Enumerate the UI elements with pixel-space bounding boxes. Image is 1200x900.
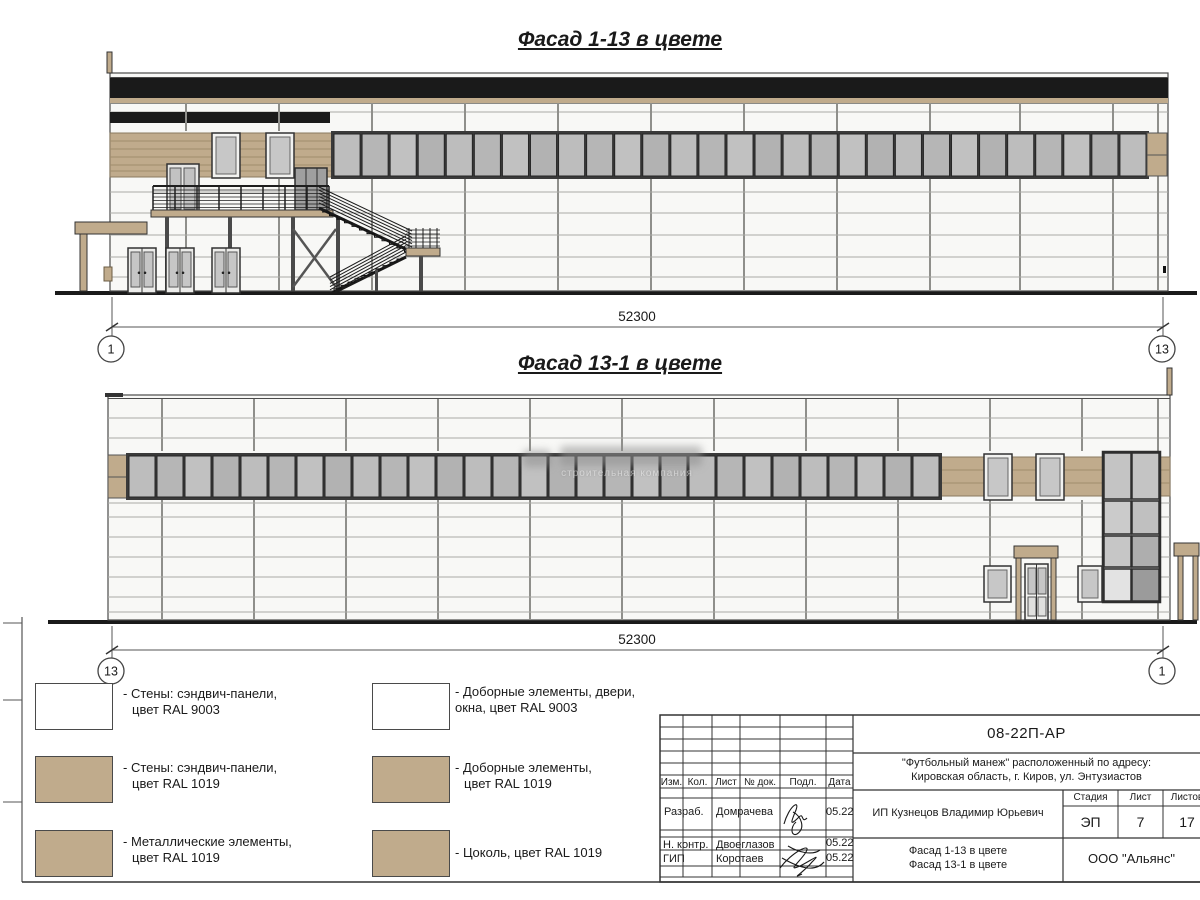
- tb-stage-label: Стадия: [1063, 792, 1118, 803]
- legend-label: - Доборные элементы, двери, окна, цвет R…: [455, 684, 635, 715]
- drawing-sheet: 5230011352300131 Фасад 1-13 в цвете Фаса…: [0, 0, 1200, 900]
- legend-line: - Стены: сэндвич-панели,: [123, 760, 277, 776]
- axis-label-right: 13: [1155, 343, 1169, 357]
- legend-line: цвет RAL 1019: [455, 776, 592, 792]
- facade-1-13-drawing: [55, 52, 1197, 295]
- tb-row2-name: Двоеглазов: [716, 839, 774, 851]
- legend-swatch-trim-ral1019: [372, 756, 450, 803]
- tb-col-ndok: № док.: [740, 777, 780, 788]
- legend-line: цвет RAL 1019: [123, 850, 292, 866]
- tb-row1-name: Домрачева: [716, 806, 773, 818]
- tb-list-value: 7: [1118, 814, 1163, 830]
- tb-col-izm: Изм.: [660, 777, 683, 788]
- legend-line: цвет RAL 1019: [123, 776, 277, 792]
- tb-sheet-title-line1: Фасад 1-13 в цвете: [853, 845, 1063, 857]
- tb-list-label: Лист: [1118, 792, 1163, 803]
- signature-gip: [780, 846, 824, 876]
- dimension-value: 52300: [618, 632, 656, 647]
- dimension-value: 52300: [618, 309, 656, 324]
- axis-label-left: 1: [108, 343, 115, 357]
- legend-swatch-walls-ral1019: [35, 756, 113, 803]
- facade-13-1-dimension: 52300131: [98, 626, 1175, 684]
- legend-label: - Доборные элементы, цвет RAL 1019: [455, 760, 592, 791]
- legend-label: - Стены: сэндвич-панели, цвет RAL 1019: [123, 760, 277, 791]
- axis-label-left: 13: [104, 665, 118, 679]
- tb-company: ООО "Альянс": [1063, 851, 1200, 866]
- tb-listov-label: Листов: [1163, 792, 1200, 803]
- legend-line: - Стены: сэндвич-панели,: [123, 686, 277, 702]
- tb-col-list: Лист: [712, 777, 740, 788]
- tb-stage-value: ЭП: [1063, 814, 1118, 830]
- tb-col-kol: Кол.: [683, 777, 712, 788]
- tb-object-line1: "Футбольный манеж" расположенный по адре…: [853, 757, 1200, 769]
- tb-sheet-title-line2: Фасад 13-1 в цвете: [853, 859, 1063, 871]
- legend-swatch-walls-ral9003: [35, 683, 113, 730]
- legend-label: - Стены: сэндвич-панели, цвет RAL 9003: [123, 686, 277, 717]
- tb-row2-role: Н. контр.: [663, 839, 708, 851]
- legend-swatch-plinth-ral1019: [372, 830, 450, 877]
- tb-row2-date: 05.22: [826, 837, 853, 849]
- tb-row3-role: ГИП: [663, 853, 685, 865]
- tb-row1-role: Разраб.: [664, 806, 704, 818]
- tb-doc-number: 08-22П-АР: [853, 725, 1200, 742]
- legend-line: цвет RAL 9003: [123, 702, 277, 718]
- legend-line: окна, цвет RAL 9003: [455, 700, 635, 716]
- legend-line: - Доборные элементы, двери,: [455, 684, 635, 700]
- facade-1-13-title: Фасад 1-13 в цвете: [360, 28, 880, 52]
- tb-row3-date: 05.22: [826, 852, 853, 864]
- legend-label: - Цоколь, цвет RAL 1019: [455, 845, 602, 861]
- axis-label-right: 1: [1159, 665, 1166, 679]
- legend-line: - Цоколь, цвет RAL 1019: [455, 845, 602, 861]
- tb-listov-value: 17: [1163, 814, 1200, 830]
- legend-line: - Металлические элементы,: [123, 834, 292, 850]
- tb-row1-date: 05.22: [826, 806, 853, 818]
- tb-row3-name: Коротаев: [716, 853, 764, 865]
- tb-client: ИП Кузнецов Владимир Юрьевич: [853, 807, 1063, 819]
- tb-object-line2: Кировская область, г. Киров, ул. Энтузиа…: [853, 771, 1200, 783]
- tb-col-data: Дата: [826, 777, 853, 788]
- legend-line: - Доборные элементы,: [455, 760, 592, 776]
- facade-13-1-drawing: [48, 368, 1199, 624]
- legend-label: - Металлические элементы, цвет RAL 1019: [123, 834, 292, 865]
- tb-col-podp: Подл.: [780, 777, 826, 788]
- legend-swatch-metal-ral1019: [35, 830, 113, 877]
- legend-swatch-trim-ral9003: [372, 683, 450, 730]
- facade-13-1-title: Фасад 13-1 в цвете: [360, 352, 880, 376]
